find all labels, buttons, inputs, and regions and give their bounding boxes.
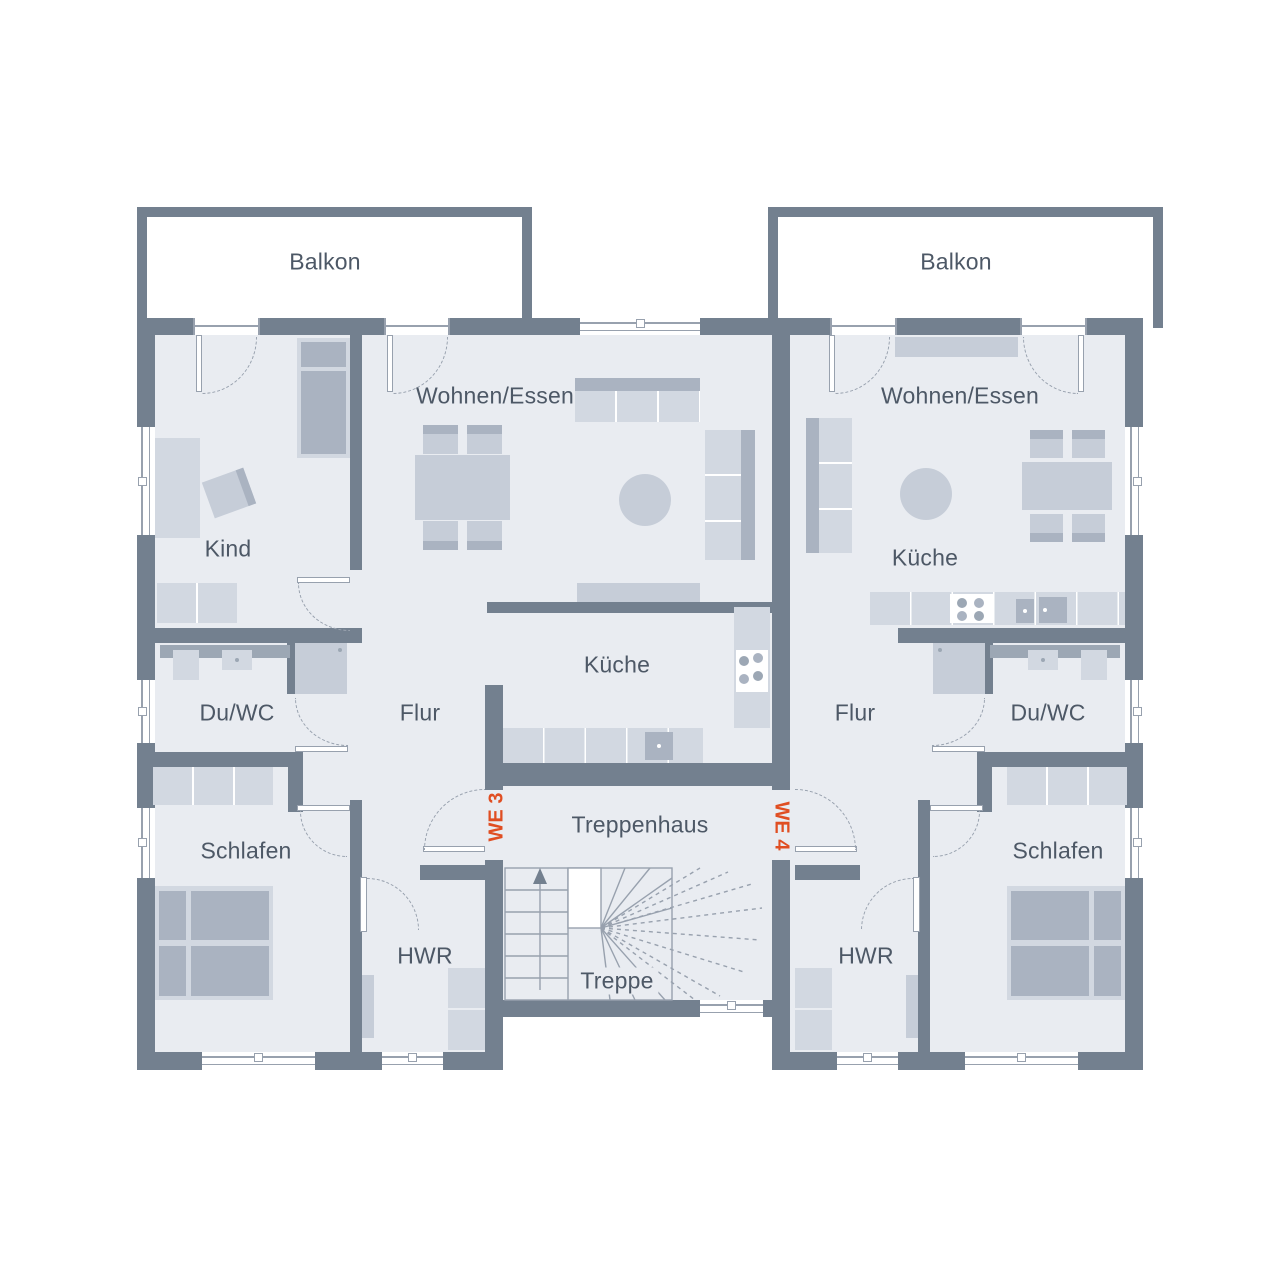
chair: [423, 521, 458, 550]
unit-marker-we4: WE 4: [770, 802, 793, 851]
room-label-bath-right: Du/WC: [1010, 700, 1085, 727]
window-utility-right-bottom: [837, 1052, 898, 1070]
dryer: [795, 1010, 832, 1050]
wardrobe: [1007, 767, 1127, 805]
window-bedroom-left: [137, 808, 155, 878]
shelf: [906, 975, 918, 1038]
room-label-living-right: Wohnen/Essen: [881, 383, 1039, 410]
dishwasher: [1039, 597, 1067, 623]
chair: [423, 425, 458, 454]
room-label-living-left: Wohnen/Essen: [416, 383, 574, 410]
wall-stairwell-west-lower: [485, 860, 503, 1070]
kitchen-counter: [503, 728, 703, 763]
wall-party-upper: [772, 318, 790, 790]
door-leaf-utility-right: [913, 877, 920, 932]
wall-party-lower: [772, 860, 790, 1070]
wall-bottom-left: [137, 1052, 503, 1070]
wall-jog-right: [977, 752, 992, 812]
dresser: [157, 583, 237, 623]
chair: [1072, 430, 1105, 458]
bed-pillow: [159, 891, 186, 940]
wall-bottom-right: [773, 1052, 1143, 1070]
wall-child-bath: [137, 628, 362, 643]
shelf: [362, 975, 374, 1038]
washer: [448, 968, 485, 1008]
unit-marker-we3: WE 3: [486, 793, 509, 842]
kitchen-sink: [645, 732, 673, 760]
bed-pillow: [1094, 891, 1121, 940]
window-bedroom-left-bottom: [202, 1052, 315, 1070]
bed-pillow: [159, 946, 186, 996]
sofa-chaise-back: [741, 430, 755, 560]
stove: [950, 594, 994, 623]
room-label-child: Kind: [205, 536, 252, 563]
bed-mattress: [1011, 891, 1089, 940]
room-label-hall-right: Flur: [835, 700, 875, 727]
sideboard: [895, 337, 1018, 357]
window-bedroom-right-bottom: [965, 1052, 1078, 1070]
balcony-door-child: [193, 318, 260, 335]
room-label-bath-left: Du/WC: [199, 700, 274, 727]
wall-child-east: [350, 330, 362, 570]
washbasin: [1028, 650, 1058, 670]
sofa-back: [575, 378, 700, 391]
sideboard: [577, 583, 700, 602]
window-living-left-top: [580, 318, 700, 335]
window-bath-left: [137, 680, 155, 743]
balcony-door-living-right-1: [830, 318, 897, 335]
chair: [467, 425, 502, 454]
chair: [1030, 514, 1063, 542]
window-child-left: [137, 427, 155, 535]
shower: [295, 643, 347, 694]
room-label-kitchen-right: Küche: [892, 545, 958, 572]
door-leaf: [1078, 335, 1084, 392]
child-bed-pillow: [301, 342, 346, 367]
bed-mattress: [191, 946, 269, 996]
bed-pillow: [1094, 946, 1121, 996]
door-leaf-bath-left: [295, 746, 348, 752]
kitchen-sink: [1016, 599, 1034, 623]
wall-bath-bedroom-right: [977, 752, 1143, 767]
washer: [795, 968, 832, 1008]
window-utility-left-bottom: [382, 1052, 443, 1070]
bed-mattress: [1011, 946, 1089, 996]
wardrobe: [153, 767, 273, 805]
room-label-utility-left: HWR: [397, 943, 453, 970]
wall-bedroom-utility-left: [350, 812, 362, 1052]
sofa: [575, 391, 700, 422]
toilet: [173, 650, 199, 680]
wall-utility-north-left: [420, 865, 485, 880]
balcony-door-living-left: [384, 318, 450, 335]
coffee-table: [619, 474, 671, 526]
toilet: [1081, 650, 1107, 680]
room-label-balcony-right: Balkon: [920, 249, 992, 276]
sofa-back: [806, 418, 819, 553]
room-label-hall-left: Flur: [400, 700, 440, 727]
chair: [467, 521, 502, 550]
coffee-table: [900, 468, 952, 520]
child-bed-mattress: [301, 371, 346, 454]
room-label-stairs: Treppe: [575, 968, 658, 995]
floor-plan-canvas: Balkon Balkon Wohnen/Essen Wohnen/Essen …: [0, 0, 1280, 1280]
room-label-bedroom-right: Schlafen: [1012, 838, 1103, 865]
room-label-bedroom-left: Schlafen: [200, 838, 291, 865]
dryer: [448, 1010, 485, 1050]
door-leaf-utility-left: [360, 877, 367, 932]
shower: [933, 643, 985, 694]
room-label-balcony-left: Balkon: [289, 249, 361, 276]
bed-mattress: [191, 891, 269, 940]
stair-direction-arrow: [533, 868, 547, 884]
dining-table: [415, 455, 510, 520]
balcony-door-living-right-2: [1020, 318, 1087, 335]
room-label-kitchen-left: Küche: [584, 652, 650, 679]
outside-notch: [503, 1017, 773, 1070]
wall-utility-north-right: [795, 865, 860, 880]
wall-kitchen-north-left: [487, 602, 772, 613]
wall-bedroom-stub-right: [918, 800, 930, 812]
wall-counter-right: [898, 628, 1143, 643]
sofa-chaise: [705, 430, 741, 560]
wall-bath-bedroom-left: [137, 752, 303, 767]
dining-table: [1022, 462, 1112, 510]
wall-kitchen-stairwell: [485, 763, 790, 786]
desk: [155, 438, 200, 538]
wall-bedroom-stub-left: [350, 800, 362, 812]
door-leaf-bath-right: [932, 746, 985, 752]
chair: [1072, 514, 1105, 542]
stove: [736, 650, 768, 692]
washbasin: [222, 650, 252, 670]
window-bedroom-right: [1125, 808, 1143, 878]
chair: [1030, 430, 1063, 458]
kitchen-counter: [870, 592, 1125, 625]
sofa: [819, 418, 852, 553]
wall-bedroom-utility-right: [918, 812, 930, 1052]
wall-jog-left: [288, 752, 303, 812]
room-label-stairwell: Treppenhaus: [572, 812, 709, 839]
window-living-right: [1125, 427, 1143, 535]
window-bath-right: [1125, 680, 1143, 743]
room-label-utility-right: HWR: [838, 943, 894, 970]
